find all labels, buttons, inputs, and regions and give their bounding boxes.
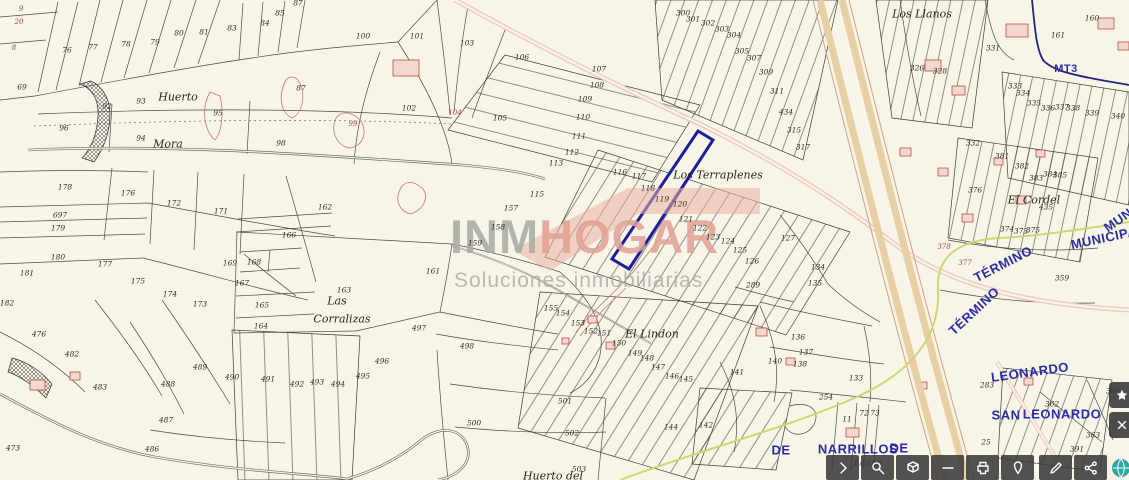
share-icon xyxy=(1083,460,1099,476)
chevron-right-icon xyxy=(835,460,851,476)
expand-toolbar-button[interactable] xyxy=(826,455,859,480)
edit-button[interactable] xyxy=(1039,455,1072,480)
cadastral-map xyxy=(0,0,1129,480)
pencil-icon xyxy=(1048,460,1064,476)
cross-icon xyxy=(1114,417,1129,433)
measure-button[interactable] xyxy=(931,455,964,480)
globe-button[interactable] xyxy=(1109,455,1129,480)
zoom-search-button[interactable] xyxy=(861,455,894,480)
side-control-top[interactable] xyxy=(1109,382,1129,408)
pin-button[interactable] xyxy=(1001,455,1034,480)
print-button[interactable] xyxy=(966,455,999,480)
side-controls xyxy=(1109,382,1129,438)
municipal-boundary xyxy=(1032,0,1129,85)
pin-icon xyxy=(1010,460,1026,476)
globe-icon xyxy=(1109,458,1129,478)
toolbar-divider xyxy=(1036,458,1037,477)
minus-icon xyxy=(940,460,956,476)
cube-icon xyxy=(905,460,921,476)
printer-icon xyxy=(975,460,991,476)
star-icon xyxy=(1115,388,1129,402)
magnifier-icon xyxy=(870,460,886,476)
huerto-dashed-line xyxy=(34,120,452,126)
hatched-areas xyxy=(8,81,110,398)
share-button[interactable] xyxy=(1074,455,1107,480)
map-viewer: INMHOGAR Soluciones inmobiliarias 920869… xyxy=(0,0,1129,480)
map-toolbar xyxy=(826,455,1129,480)
layers-cube-button[interactable] xyxy=(896,455,929,480)
side-control-bottom[interactable] xyxy=(1109,412,1129,438)
parcel-strip-zones xyxy=(232,0,1129,480)
